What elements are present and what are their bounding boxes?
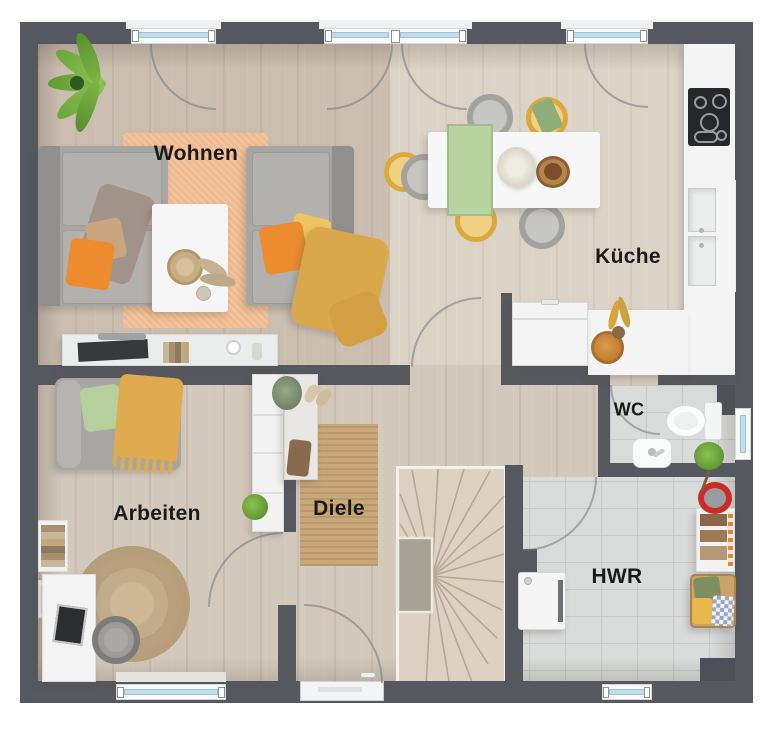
window-cap xyxy=(603,687,609,698)
sofa-left-backrest xyxy=(38,146,60,306)
window-cap xyxy=(132,30,139,42)
floor-plan-image: Wohnen Küche WC Arbeiten Diele HWR xyxy=(0,0,775,730)
shelf-seam xyxy=(253,452,283,454)
cooktop-burner xyxy=(700,113,719,132)
tv-flatscreen xyxy=(78,339,149,362)
cooktop-burner xyxy=(694,96,707,109)
toilet-bowl-inner xyxy=(674,412,698,430)
room-label-diele: Diele xyxy=(313,497,365,521)
window-cap xyxy=(218,687,225,698)
freezer-chest xyxy=(512,302,588,366)
cooktop-burner xyxy=(716,130,727,141)
washing-machine-knob xyxy=(524,577,532,585)
laundry-checkered xyxy=(711,595,735,626)
room-label-wc: WC xyxy=(614,400,645,421)
window-cap xyxy=(459,30,466,42)
room-label-wohnen: Wohnen xyxy=(154,142,238,166)
window-glass-wc xyxy=(740,415,746,453)
window-sill-office xyxy=(116,672,226,682)
window-cap xyxy=(117,687,124,698)
kitchen-sink-basin xyxy=(688,188,716,232)
office-chair-seat xyxy=(104,628,128,652)
window-cap xyxy=(325,30,332,42)
flower-vase xyxy=(612,326,625,339)
window-glass-office xyxy=(124,689,218,695)
bag xyxy=(286,439,312,477)
monitor xyxy=(53,604,88,646)
shelf-contents xyxy=(700,514,727,526)
window-glass-2b xyxy=(400,32,460,38)
room-label-arbeiten: Arbeiten xyxy=(113,502,201,526)
window-cap xyxy=(208,30,215,42)
shelf-seam xyxy=(253,414,283,416)
freezer-seam xyxy=(513,318,587,320)
wall-office-hall-lower xyxy=(278,605,296,681)
flower-bouquet xyxy=(497,147,535,187)
potted-plant-office xyxy=(242,494,268,520)
wall-stub-kitchen xyxy=(501,293,512,368)
pillow-orange xyxy=(65,237,115,291)
laundry-towel-yellow xyxy=(692,598,712,624)
sofa-cushion xyxy=(252,152,330,226)
washing-machine-door-slot xyxy=(558,580,563,622)
window-glass-2a xyxy=(331,32,389,38)
window-glass-1 xyxy=(138,32,209,38)
daybed-bolster xyxy=(57,380,81,468)
decor-bowl-inner xyxy=(544,163,562,180)
wc-plant xyxy=(694,442,724,470)
mug xyxy=(226,340,241,355)
shelf-contents xyxy=(700,530,727,542)
toilet-tank xyxy=(704,402,722,440)
window-glass-3 xyxy=(573,32,641,38)
decor-tray-inner xyxy=(176,258,194,276)
window-mullion xyxy=(391,30,400,43)
room-label-hwr: HWR xyxy=(591,565,642,589)
front-door-panel xyxy=(318,687,362,692)
blanket-yellow xyxy=(112,373,184,474)
books-on-shelf xyxy=(41,525,65,567)
wall-outer-right xyxy=(735,22,753,703)
sink-drain xyxy=(699,228,704,233)
freezer-handle xyxy=(541,299,559,305)
wall-outer-left xyxy=(20,22,38,703)
window-cap xyxy=(640,30,647,42)
dining-chair-gray xyxy=(519,203,565,249)
wall-pillar-hwr-south xyxy=(700,658,737,681)
window-cap xyxy=(644,687,650,698)
cooktop-burner xyxy=(712,94,727,109)
vase xyxy=(196,286,211,301)
shelf-contents-strip xyxy=(728,512,733,566)
soundbar xyxy=(98,333,146,340)
cooktop-burner-oval xyxy=(694,131,718,143)
window-cap xyxy=(567,30,574,42)
books xyxy=(163,342,189,363)
window-glass-hwr xyxy=(609,689,645,695)
sink-drain xyxy=(699,243,704,248)
hall-plant xyxy=(272,376,302,410)
table-runner-green xyxy=(447,124,493,216)
winder-staircase xyxy=(396,466,507,690)
shelf-contents xyxy=(700,546,727,560)
room-label-kueche: Küche xyxy=(595,245,661,269)
decor-item xyxy=(252,343,262,360)
